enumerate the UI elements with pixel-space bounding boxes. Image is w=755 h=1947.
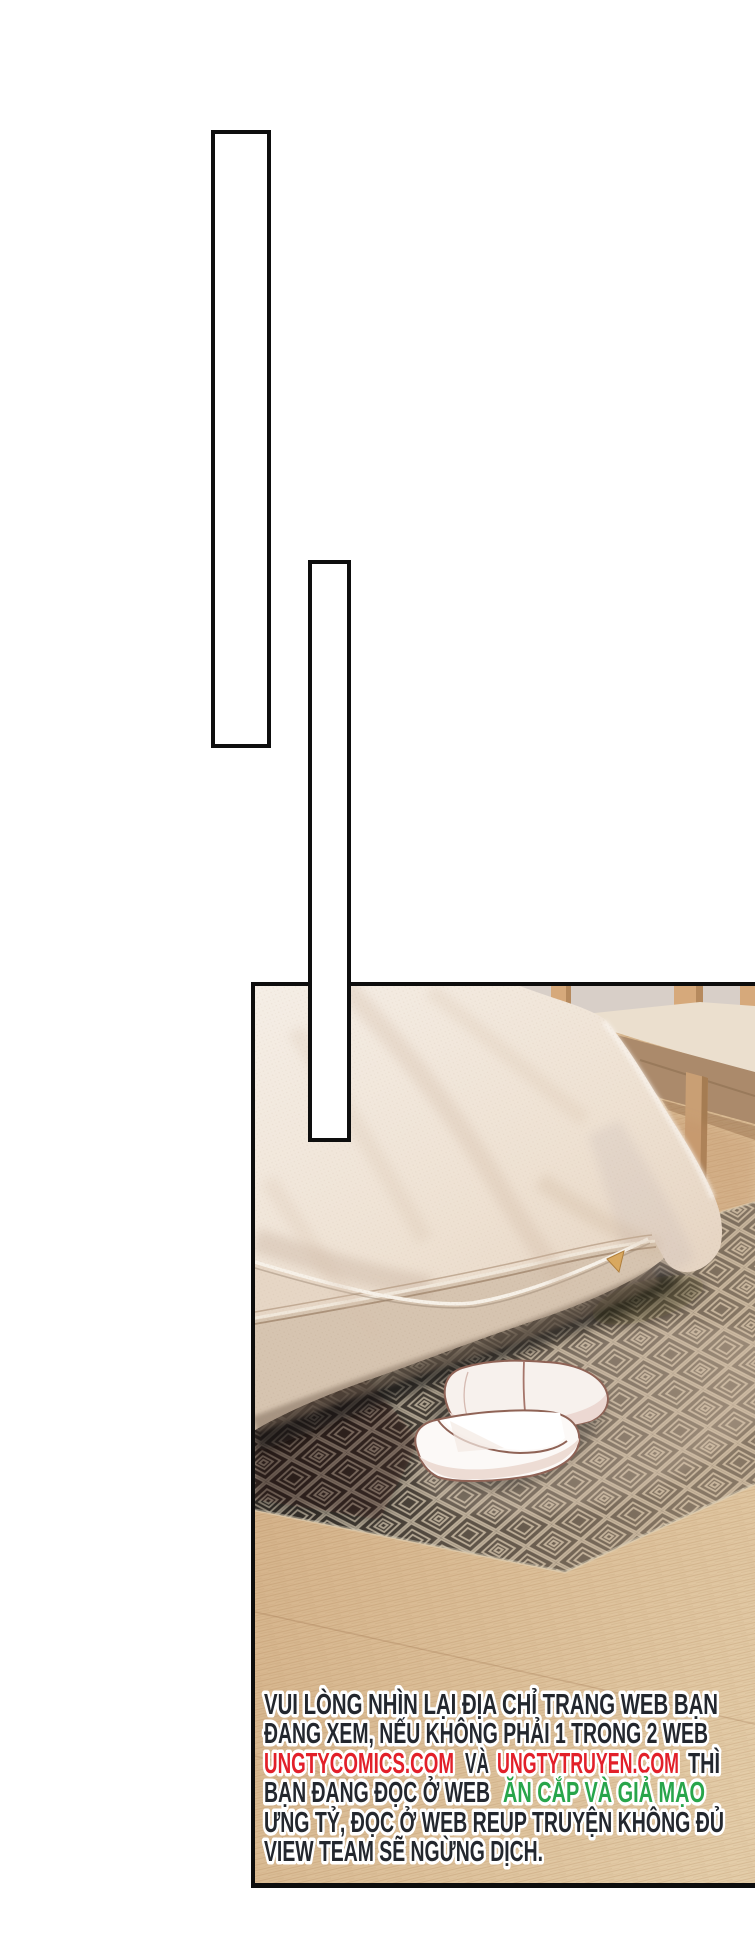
svg-text:THÌ: THÌ: [688, 1746, 720, 1780]
svg-text:ƯNG TỶ, ĐỌC Ở WEB REUP TRUYỆN: ƯNG TỶ, ĐỌC Ở WEB REUP TRUYỆN KHÔNG ĐỦ: [264, 1805, 724, 1839]
svg-text:UNGTYTRUYEN.COM: UNGTYTRUYEN.COM: [497, 1748, 679, 1780]
svg-text:VÀ: VÀ: [465, 1746, 489, 1780]
svg-text:VUI LÒNG NHÌN LẠI ĐỊA CHỈ TRAN: VUI LÒNG NHÌN LẠI ĐỊA CHỈ TRANG WEB BẠN: [264, 1687, 718, 1721]
svg-text:VIEW TEAM SẼ NGỪNG DỊCH.: VIEW TEAM SẼ NGỪNG DỊCH.: [264, 1834, 543, 1868]
svg-text:BẠN ĐANG ĐỌC Ở WEB: BẠN ĐANG ĐỌC Ở WEB: [264, 1775, 490, 1809]
svg-text:ĐANG XEM, NẾU KHÔNG PHẢI 1 TRO: ĐANG XEM, NẾU KHÔNG PHẢI 1 TRONG 2 WEB: [264, 1716, 708, 1750]
svg-text:ĂN CẮP VÀ GIẢ MẠO: ĂN CẮP VÀ GIẢ MẠO: [503, 1775, 705, 1809]
svg-text:UNGTYCOMICS.COM: UNGTYCOMICS.COM: [264, 1748, 454, 1780]
